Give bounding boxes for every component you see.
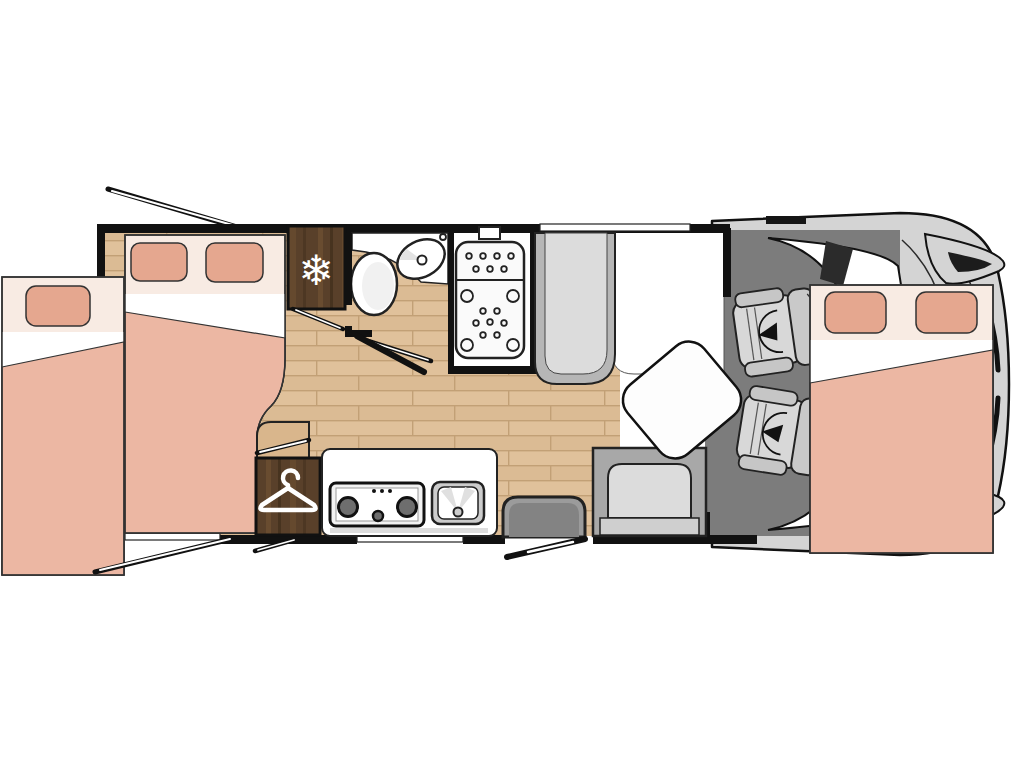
entrance-step-inner — [509, 503, 579, 537]
counter-base — [330, 528, 488, 533]
pillow — [131, 243, 187, 281]
basin-faucet — [418, 256, 427, 265]
bench-seat — [593, 448, 706, 536]
fridge: ❄ — [288, 226, 345, 309]
toilet-bowl — [362, 262, 394, 310]
burner-right — [398, 498, 417, 517]
window-bedroom — [125, 533, 220, 540]
entrance-step — [503, 497, 585, 537]
shower-tray — [456, 242, 524, 358]
shower — [448, 226, 537, 374]
showerhead — [479, 227, 500, 239]
hob-knob — [388, 489, 392, 493]
burner-left — [339, 498, 358, 517]
bed-blanket — [2, 342, 124, 575]
floor-plan: ❄ — [0, 0, 1024, 768]
overcab-bed — [810, 285, 993, 553]
floor-plan-canvas: ❄ — [0, 0, 1024, 768]
wardrobe — [256, 458, 320, 535]
hob — [330, 483, 424, 526]
bench-cushion — [608, 464, 691, 518]
shower-wall-left — [448, 233, 454, 374]
pillow — [825, 292, 886, 333]
bed-blanket — [810, 350, 993, 553]
lounge-seat — [535, 233, 615, 384]
wall-cab-partition — [723, 228, 731, 297]
pillow — [916, 292, 977, 333]
pillow — [26, 286, 90, 326]
rear-single-bed — [2, 277, 124, 575]
kitchen — [322, 449, 497, 536]
hob-knob — [380, 489, 384, 493]
kitchen-sink — [432, 482, 484, 524]
lounge-seat-cushion — [545, 233, 607, 374]
shower-wall-bottom — [448, 366, 537, 374]
bench-base — [600, 518, 699, 535]
wall-rear — [97, 224, 105, 280]
bathroom-wall — [345, 233, 352, 305]
window-dinette — [540, 224, 690, 231]
pillow — [206, 243, 263, 282]
hob-knob — [372, 489, 376, 493]
cup-dot — [440, 234, 446, 240]
sink-faucet — [454, 508, 463, 517]
burner-small — [373, 511, 383, 521]
snowflake-icon: ❄ — [298, 246, 333, 295]
roof-rail — [766, 216, 806, 224]
